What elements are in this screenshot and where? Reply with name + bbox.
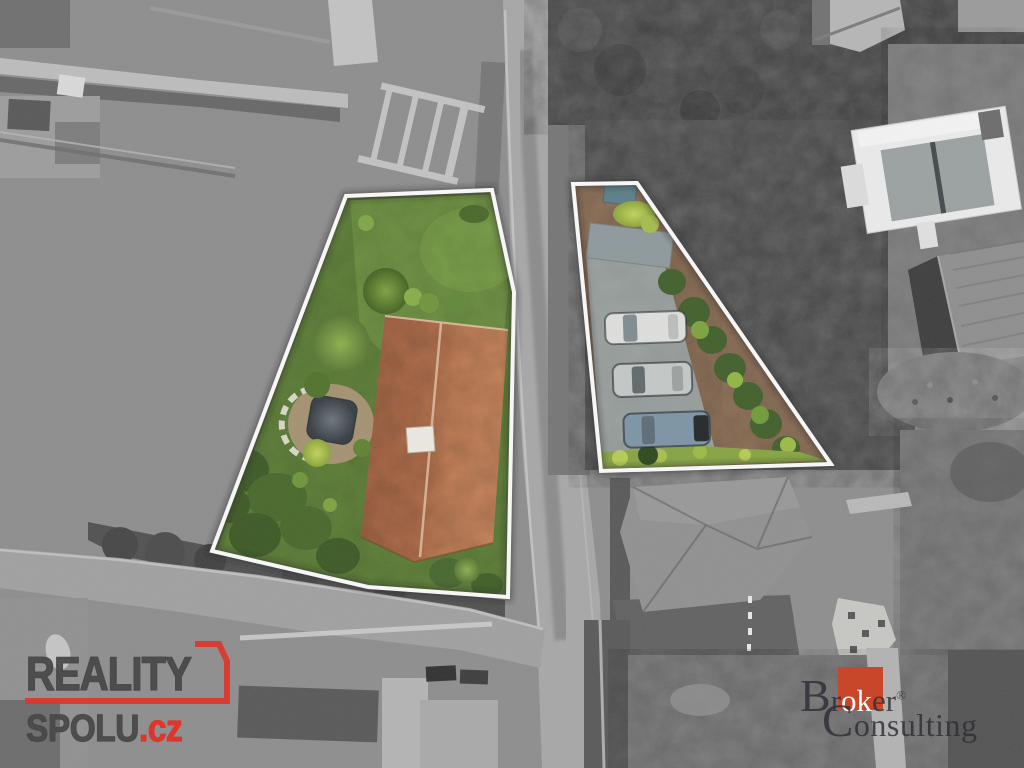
real-estate-aerial-photo: REALITY SPOLU.cz Broker® Consulting	[0, 0, 1024, 768]
aerial-photo-canvas	[0, 0, 1024, 768]
photo-grain	[0, 0, 1024, 768]
